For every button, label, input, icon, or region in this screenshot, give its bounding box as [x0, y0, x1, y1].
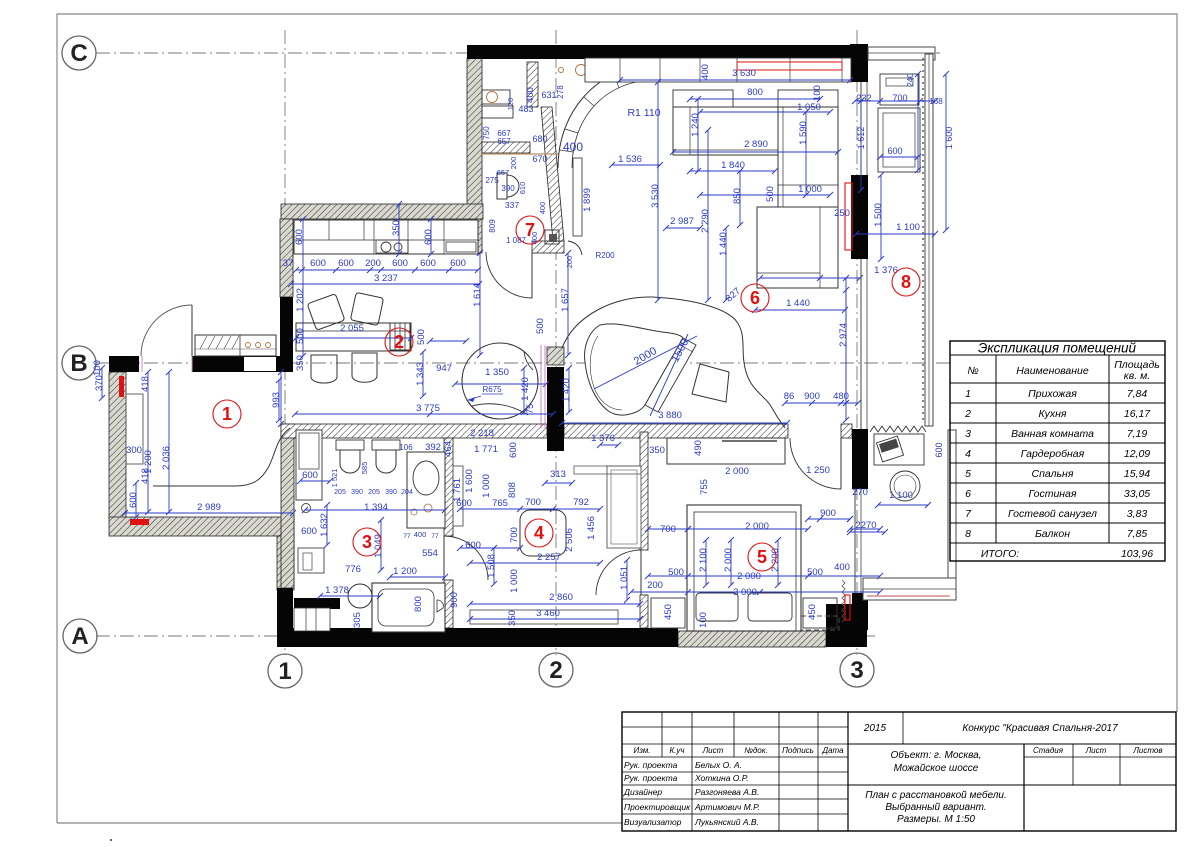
svg-text:4: 4	[534, 523, 544, 543]
svg-text:600: 600	[302, 470, 318, 481]
svg-text:Гостевой санузел: Гостевой санузел	[1008, 508, 1097, 520]
svg-text:2015: 2015	[863, 723, 887, 734]
svg-text:600: 600	[934, 442, 944, 457]
svg-text:600: 600	[128, 492, 139, 508]
svg-text:7,19: 7,19	[1127, 428, 1148, 440]
svg-text:75: 75	[525, 404, 536, 415]
svg-text:585: 585	[360, 462, 369, 475]
svg-text:400: 400	[563, 140, 583, 154]
svg-text:1 420: 1 420	[520, 377, 531, 401]
svg-text:490: 490	[693, 440, 704, 456]
svg-text:600: 600	[887, 146, 902, 156]
svg-text:700: 700	[509, 527, 520, 543]
svg-text:Наименование: Наименование	[1016, 365, 1089, 377]
svg-text:100: 100	[698, 612, 709, 628]
svg-text:37: 37	[283, 258, 294, 269]
svg-text:1 840: 1 840	[721, 160, 745, 171]
svg-text:418: 418	[140, 376, 151, 392]
svg-text:500: 500	[765, 186, 776, 202]
svg-text:R1 110: R1 110	[627, 107, 660, 119]
svg-text:205: 205	[334, 489, 346, 496]
svg-text:2 036: 2 036	[161, 446, 172, 470]
svg-text:450: 450	[807, 604, 818, 620]
svg-text:1 240: 1 240	[690, 113, 701, 137]
svg-text:3 880: 3 880	[658, 410, 682, 421]
svg-text:392: 392	[425, 442, 441, 453]
svg-text:350: 350	[295, 355, 306, 371]
svg-text:500: 500	[416, 329, 427, 345]
svg-text:Лист: Лист	[702, 746, 724, 755]
svg-text:Ванная комната: Ванная комната	[1011, 428, 1094, 440]
svg-text:100: 100	[812, 85, 823, 101]
svg-text:В: В	[70, 350, 87, 377]
svg-text:1: 1	[965, 388, 971, 400]
svg-text:3,83: 3,83	[1127, 508, 1148, 520]
svg-text:План с расстановкой мебели.: План с расстановкой мебели.	[865, 789, 1007, 801]
svg-text:483: 483	[518, 104, 533, 114]
svg-text:278: 278	[556, 85, 565, 99]
svg-text:Рук. проекта: Рук. проекта	[624, 773, 678, 783]
svg-text:2270: 2270	[855, 520, 876, 531]
svg-text:500: 500	[295, 328, 306, 344]
svg-text:657: 657	[497, 137, 511, 146]
svg-text:1 050: 1 050	[797, 102, 821, 113]
svg-text:337: 337	[505, 200, 519, 210]
svg-text:Проектировщик: Проектировщик	[624, 802, 691, 812]
svg-text:103,96: 103,96	[1121, 548, 1153, 560]
svg-text:1 521: 1 521	[330, 469, 339, 488]
svg-text:1 440: 1 440	[718, 232, 729, 256]
svg-text:Листов: Листов	[1132, 746, 1162, 755]
svg-text:1: 1	[222, 404, 232, 424]
svg-text:670: 670	[532, 154, 547, 164]
svg-text:3 775: 3 775	[416, 403, 440, 414]
svg-text:400: 400	[538, 202, 547, 215]
svg-text:200: 200	[565, 256, 574, 269]
svg-text:1 000: 1 000	[798, 184, 822, 195]
svg-text:5: 5	[965, 468, 971, 480]
svg-text:1 420: 1 420	[561, 378, 572, 402]
svg-text:1 508: 1 508	[486, 554, 497, 578]
svg-text:554: 554	[422, 548, 438, 559]
svg-text:3 460: 3 460	[536, 608, 560, 619]
svg-text:2 890: 2 890	[744, 139, 768, 150]
svg-text:6: 6	[750, 288, 760, 308]
svg-text:480: 480	[833, 391, 849, 402]
svg-text:1 000: 1 000	[509, 569, 520, 593]
svg-text:464: 464	[443, 441, 454, 457]
svg-text:755: 755	[699, 479, 710, 495]
svg-text:205: 205	[368, 489, 380, 496]
svg-text:1 600: 1 600	[464, 469, 475, 493]
svg-text:Гардеробная: Гардеробная	[1021, 448, 1085, 460]
svg-text:1 899: 1 899	[582, 188, 593, 212]
svg-text:Размеры. М 1:50: Размеры. М 1:50	[897, 814, 975, 825]
svg-text:№док.: №док.	[744, 746, 768, 755]
svg-text:1 456: 1 456	[586, 516, 597, 540]
svg-text:275: 275	[485, 176, 499, 185]
svg-text:600: 600	[310, 258, 326, 269]
svg-text:1 657: 1 657	[560, 288, 571, 312]
svg-text:2 257: 2 257	[537, 552, 561, 563]
svg-text:270: 270	[852, 487, 868, 498]
svg-text:77: 77	[403, 533, 411, 540]
svg-text:400: 400	[834, 562, 850, 573]
svg-text:8: 8	[965, 528, 971, 540]
svg-text:500: 500	[668, 567, 684, 578]
svg-text:1: 1	[278, 658, 291, 685]
svg-text:993: 993	[271, 392, 282, 408]
svg-text:776: 776	[345, 564, 361, 575]
svg-text:2 000: 2 000	[723, 548, 734, 572]
svg-text:Экспликация помещений: Экспликация помещений	[978, 341, 1137, 356]
svg-text:500: 500	[535, 318, 546, 334]
svg-text:2 055: 2 055	[340, 323, 364, 334]
svg-text:15,94: 15,94	[1124, 468, 1150, 480]
svg-text:Лист: Лист	[1085, 746, 1107, 755]
svg-text:106: 106	[399, 443, 413, 452]
svg-text:750: 750	[482, 126, 491, 140]
svg-text:Объект: г. Москва,: Объект: г. Москва,	[890, 749, 981, 761]
svg-text:700: 700	[525, 497, 541, 508]
svg-text:2 000: 2 000	[725, 466, 749, 477]
svg-text:3 237: 3 237	[374, 273, 398, 284]
svg-text:1 440: 1 440	[786, 298, 810, 309]
svg-text:1 394: 1 394	[364, 502, 388, 513]
svg-text:Стадия: Стадия	[1033, 746, 1064, 755]
svg-text:600: 600	[420, 258, 436, 269]
svg-text:7,84: 7,84	[1127, 388, 1148, 400]
svg-text:4: 4	[965, 448, 971, 460]
svg-text:2: 2	[964, 408, 971, 420]
svg-text:1 000: 1 000	[481, 474, 492, 498]
svg-text:3 530: 3 530	[650, 184, 661, 208]
svg-text:3: 3	[850, 657, 863, 684]
svg-text:418: 418	[140, 468, 151, 484]
svg-text:3: 3	[362, 532, 372, 552]
svg-text:R675: R675	[482, 385, 502, 394]
svg-text:232: 232	[856, 93, 871, 103]
svg-text:Хоткина О.Р.: Хоткина О.Р.	[694, 773, 748, 783]
svg-text:900: 900	[820, 508, 836, 519]
svg-text:2 974: 2 974	[838, 323, 849, 347]
svg-text:2 000: 2 000	[745, 521, 769, 532]
svg-text:792: 792	[573, 497, 589, 508]
svg-text:300: 300	[126, 445, 142, 456]
svg-text:1 250: 1 250	[806, 465, 830, 476]
svg-text:Разгоняева А.В.: Разгоняева А.В.	[695, 787, 759, 797]
svg-text:Артимович М.Р.: Артимович М.Р.	[694, 802, 760, 812]
svg-text:313: 313	[550, 469, 566, 480]
svg-text:200: 200	[647, 580, 663, 591]
svg-text:240: 240	[906, 73, 915, 87]
svg-text:2 218: 2 218	[470, 428, 494, 439]
svg-text:2: 2	[394, 332, 404, 352]
svg-text:1 100: 1 100	[889, 490, 913, 501]
svg-text:Конкурс "Красивая Спальня-2017: Конкурс "Красивая Спальня-2017	[962, 723, 1118, 734]
svg-text:Визуализатор: Визуализатор	[624, 817, 682, 827]
svg-text:1 202: 1 202	[295, 288, 306, 312]
svg-text:Прихожая: Прихожая	[1028, 388, 1077, 400]
svg-text:3: 3	[965, 428, 971, 440]
svg-text:86: 86	[784, 391, 795, 402]
svg-text:1 051: 1 051	[619, 566, 630, 590]
svg-text:600: 600	[450, 258, 466, 269]
svg-text:350: 350	[649, 445, 665, 456]
svg-text:1 343: 1 343	[415, 362, 426, 386]
svg-text:700: 700	[660, 524, 676, 535]
svg-text:1 100: 1 100	[896, 222, 920, 233]
svg-text:1 632: 1 632	[319, 513, 330, 537]
svg-text:305: 305	[352, 612, 363, 628]
svg-text:Выбранный вариант.: Выбранный вариант.	[885, 801, 986, 813]
svg-text:К.уч: К.уч	[669, 746, 684, 755]
svg-text:1 612: 1 612	[856, 127, 866, 150]
svg-text:Дизайнер: Дизайнер	[623, 787, 662, 797]
svg-text:100: 100	[92, 360, 103, 376]
svg-text:1 500: 1 500	[873, 203, 884, 227]
svg-text:7,85: 7,85	[1127, 528, 1148, 540]
svg-text:2 506: 2 506	[564, 528, 575, 552]
svg-text:2 100: 2 100	[698, 548, 709, 572]
svg-text:7: 7	[525, 220, 535, 240]
svg-text:600: 600	[465, 540, 481, 551]
svg-text:800: 800	[413, 596, 424, 612]
svg-text:390: 390	[351, 489, 363, 496]
svg-text:2 987: 2 987	[670, 216, 694, 227]
svg-text:1 376: 1 376	[591, 433, 615, 444]
svg-text:700: 700	[892, 93, 907, 103]
svg-text:809: 809	[488, 219, 497, 233]
svg-text:1 087: 1 087	[506, 236, 527, 245]
svg-text:3 630: 3 630	[732, 68, 756, 79]
svg-text:2 860: 2 860	[549, 592, 573, 603]
svg-text:Белых О. А.: Белых О. А.	[695, 760, 742, 770]
svg-text:808: 808	[507, 482, 518, 498]
svg-text:600: 600	[508, 442, 519, 458]
svg-text:С: С	[70, 40, 87, 67]
svg-text:370: 370	[94, 375, 105, 391]
svg-text:1 378: 1 378	[325, 585, 349, 596]
svg-text:2 290: 2 290	[700, 209, 711, 233]
svg-text:1 600: 1 600	[944, 127, 954, 150]
svg-text:кв. м.: кв. м.	[1124, 370, 1150, 382]
svg-text:12,09: 12,09	[1124, 448, 1150, 460]
svg-text:6: 6	[965, 488, 971, 500]
svg-text:390: 390	[501, 184, 515, 193]
svg-text:1 614: 1 614	[472, 283, 483, 307]
svg-text:5: 5	[757, 547, 767, 567]
svg-text:850: 850	[732, 188, 743, 204]
svg-text:Дата: Дата	[821, 746, 844, 755]
svg-text:16,17: 16,17	[1124, 408, 1151, 420]
svg-text:400: 400	[700, 64, 711, 80]
svg-text:250: 250	[834, 208, 850, 219]
svg-text:1 200: 1 200	[393, 566, 417, 577]
svg-text:680: 680	[532, 134, 547, 144]
svg-text:2: 2	[549, 657, 562, 684]
svg-text:900: 900	[804, 391, 820, 402]
svg-text:Гостиная: Гостиная	[1028, 488, 1076, 500]
svg-text:R200: R200	[595, 251, 615, 260]
svg-text:800: 800	[747, 87, 763, 98]
svg-text:ИТОГО:: ИТОГО:	[981, 548, 1019, 560]
svg-text:3 000: 3 000	[733, 587, 757, 598]
svg-text:Спальня: Спальня	[1032, 468, 1074, 480]
svg-text:947: 947	[436, 363, 452, 374]
svg-text:Лукьянский А.В.: Лукьянский А.В.	[694, 817, 759, 827]
svg-text:Можайское шоссе: Можайское шоссе	[894, 763, 979, 774]
svg-text:500: 500	[807, 567, 823, 578]
svg-text:Балкон: Балкон	[1035, 528, 1070, 540]
svg-text:400: 400	[525, 87, 536, 103]
svg-text:8: 8	[901, 272, 911, 292]
svg-text:600: 600	[294, 229, 305, 245]
svg-text:610: 610	[518, 182, 527, 195]
svg-text:631: 631	[541, 90, 556, 100]
svg-text:600: 600	[301, 526, 317, 537]
svg-text:33,05: 33,05	[1124, 488, 1150, 500]
svg-text:600: 600	[338, 258, 354, 269]
svg-text:765: 765	[492, 498, 508, 509]
svg-text:120: 120	[506, 98, 515, 111]
svg-text:А: А	[71, 623, 88, 650]
svg-text:600: 600	[392, 258, 408, 269]
svg-text:1 771: 1 771	[474, 444, 498, 455]
svg-text:168: 168	[929, 97, 943, 106]
svg-text:2 000: 2 000	[737, 571, 761, 582]
svg-text:Подпись: Подпись	[782, 746, 814, 755]
svg-text:2 989: 2 989	[197, 502, 221, 513]
svg-text:№: №	[967, 365, 978, 377]
svg-text:350: 350	[391, 220, 402, 236]
svg-text:204: 204	[401, 489, 413, 496]
svg-text:400: 400	[414, 530, 427, 539]
svg-text:Кухня: Кухня	[1039, 408, 1067, 420]
svg-text:900: 900	[449, 592, 460, 608]
svg-text:77: 77	[431, 533, 439, 540]
svg-text:450: 450	[663, 604, 674, 620]
svg-text:1 590: 1 590	[798, 121, 809, 145]
svg-text:1 350: 1 350	[485, 367, 509, 378]
svg-text:350: 350	[507, 610, 518, 626]
svg-text:200: 200	[509, 157, 518, 170]
svg-text:200: 200	[365, 258, 381, 269]
svg-text:1 536: 1 536	[618, 154, 642, 165]
svg-text:390: 390	[385, 489, 397, 496]
svg-text:Изм.: Изм.	[633, 746, 650, 755]
svg-text:Рук. проекта: Рук. проекта	[624, 760, 678, 770]
svg-text:600: 600	[423, 229, 434, 245]
svg-text:600: 600	[456, 498, 472, 509]
